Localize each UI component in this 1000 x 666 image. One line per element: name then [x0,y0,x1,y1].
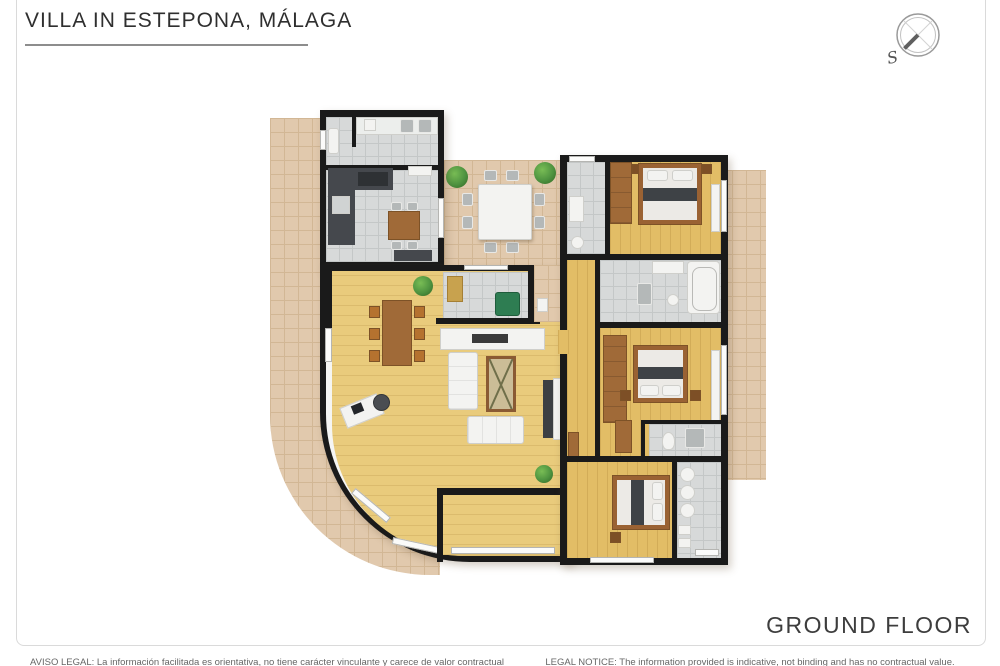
laundry-door [320,130,326,150]
bed [638,163,702,225]
hallway [567,260,595,456]
bedroom-window [721,180,727,232]
dining-chair [369,328,380,340]
pillow [640,385,659,396]
legal-notice-en: LEGAL NOTICE: The information provided i… [520,656,980,666]
bed [633,345,688,403]
tv-panel [543,380,553,438]
dining-chair [414,350,425,362]
nightstand [690,390,701,401]
kitchen-table [388,211,420,240]
basin [680,485,695,500]
plant-icon [534,162,556,184]
washing-machine [400,119,414,133]
blanket [631,480,644,525]
kitchen-chair [407,202,418,211]
toilet [678,525,691,535]
tub-inner [692,267,717,311]
sofa [467,416,524,444]
pillow [652,503,663,521]
shelf [711,184,720,232]
patio-chair [484,170,497,181]
washing-machine [418,119,432,133]
kitchen-patio-door [438,198,444,238]
kitchen-chair [407,241,418,250]
armchair-green [495,292,520,316]
nightstand [702,164,712,174]
floor-label: GROUND FLOOR [766,612,972,639]
compass-icon [893,10,945,62]
dining-chair [369,350,380,362]
page-title: VILLA IN ESTEPONA, MÁLAGA [25,9,352,33]
bed [612,475,670,530]
dining-chair [414,328,425,340]
title-underline [25,44,308,46]
blanket [643,188,697,201]
patio-table [478,184,532,240]
entry-patio-door [464,265,508,270]
patio-chair [484,242,497,253]
plant-icon [535,465,553,483]
page: VILLA IN ESTEPONA, MÁLAGA S [0,0,1000,666]
office-chair [373,394,390,411]
wall [641,420,645,456]
floor-plan [268,98,768,578]
wardrobe [603,335,627,423]
patio-chair [534,216,545,229]
pillow [652,482,663,500]
patio-chair [462,216,473,229]
dining-chair [414,306,425,318]
living-window [325,328,332,362]
kitchen-chair [391,241,402,250]
patio-chair [462,193,473,206]
hall-doorway [558,330,574,354]
bathroom-sink [569,196,584,222]
compass: S [893,10,945,80]
entry-cabinet [447,276,463,302]
pedestal-sink [662,432,675,450]
storage-closet [534,265,560,322]
hall-dresser [615,420,632,453]
laundry-sink [364,119,376,131]
bedroom-window [590,557,654,563]
nightstand [620,390,631,401]
dining-table [382,300,412,366]
wc-sink [328,128,339,154]
toilet [667,294,679,306]
pillow [662,385,681,396]
pillow [647,170,668,181]
plant-icon [446,166,468,188]
sofa [448,352,478,410]
kitchen-stove [358,172,388,186]
extractor-hood [408,166,432,176]
rug [486,356,516,412]
wardrobe [610,162,632,224]
wall [437,488,572,495]
wc-cabinet [685,428,705,448]
shower-tray [695,549,719,556]
nightstand [610,532,621,543]
patio-chair [506,242,519,253]
bathtub [687,261,720,314]
bidet [678,538,691,548]
bathroom-counter [652,261,684,274]
patio-chair [506,170,519,181]
shelf [711,350,720,430]
blanket [638,367,683,379]
wing-door [569,156,595,162]
kitchen-chair [391,202,402,211]
plant-icon [413,276,433,296]
sideboard-drawer [472,334,508,343]
basin [680,503,695,518]
dining-chair [369,306,380,318]
shower [637,283,652,305]
wall [436,318,540,324]
bedroom-window [721,345,727,415]
toilet [571,236,584,249]
kitchen-bench [394,250,432,261]
wall [352,117,356,147]
legal-notice-es: AVISO LEGAL: La información facilitada e… [30,656,500,666]
patio-chair [534,193,545,206]
porch-window [451,547,555,554]
kitchen-sink [332,196,350,214]
patio [444,160,562,268]
porch [443,495,565,555]
closet-fixture [537,298,548,312]
basin [680,467,695,482]
pillow [672,170,693,181]
